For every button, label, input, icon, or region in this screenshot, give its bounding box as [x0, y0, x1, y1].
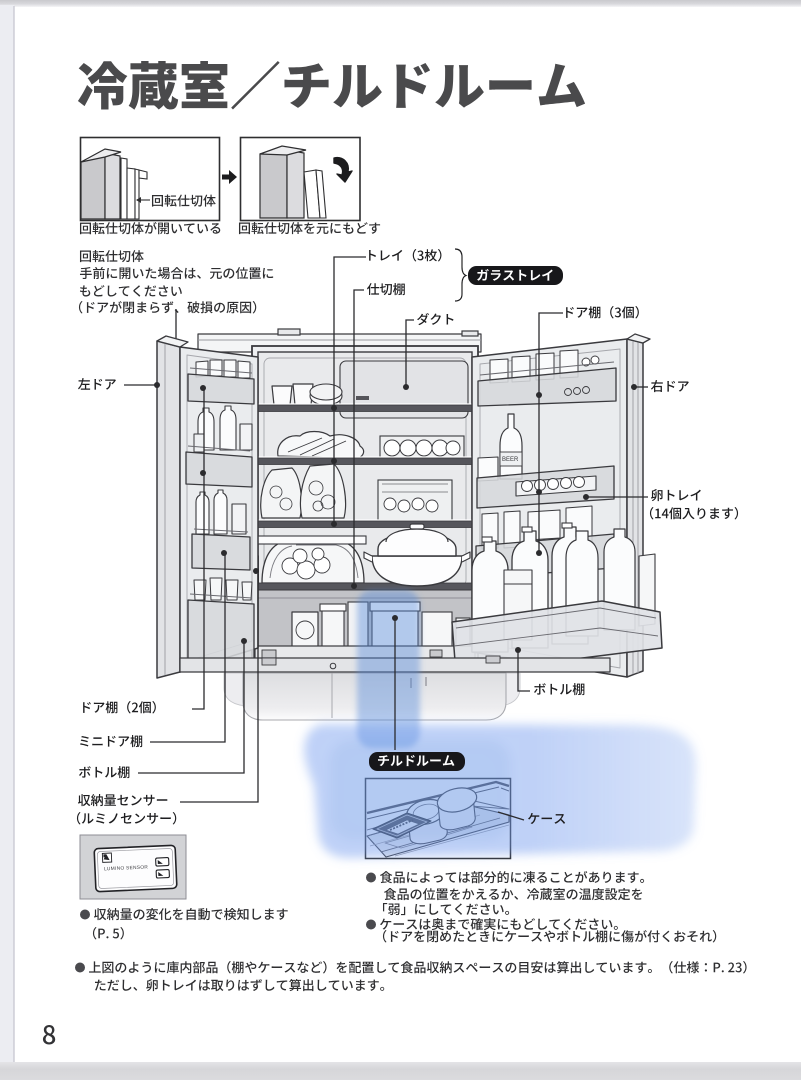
svg-text:BEER: BEER: [502, 457, 519, 463]
